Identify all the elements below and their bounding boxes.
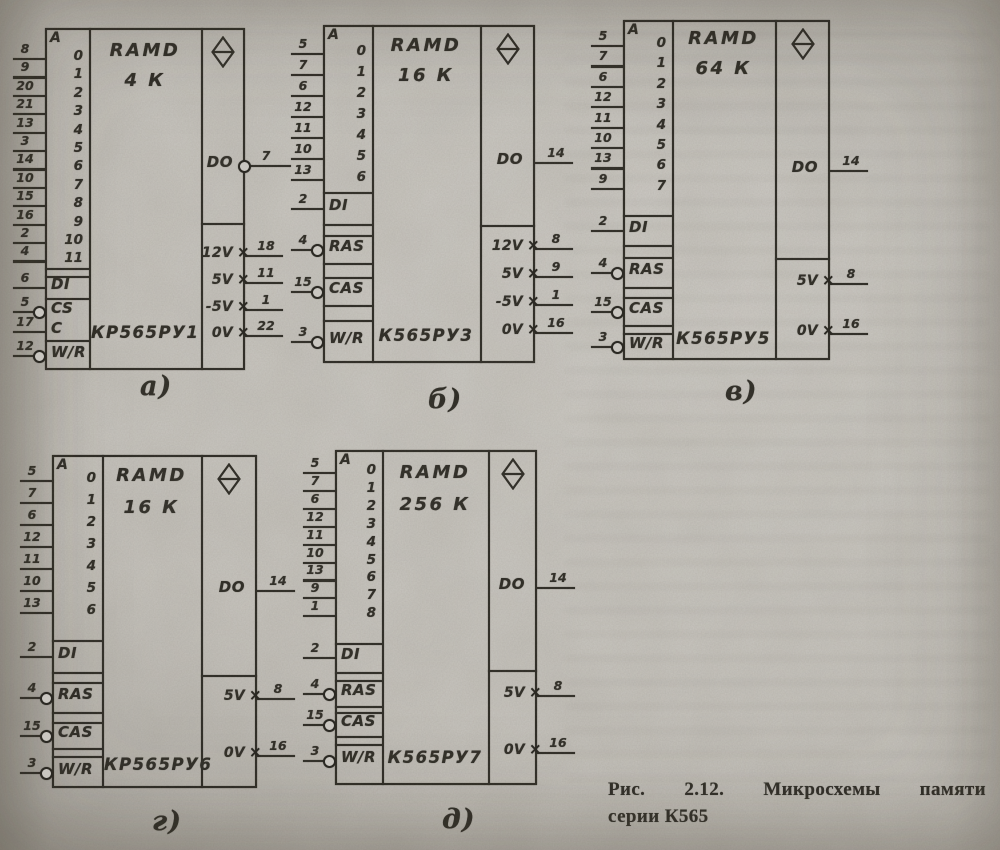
control-pin-label: CS [51,301,73,317]
pin-lead [591,167,623,169]
output-pin-label: DO [482,152,523,168]
pin-number: 2 [299,641,331,654]
power-section-divider [488,670,537,672]
pin-number: 12 [299,510,331,523]
section-divider [52,756,102,758]
address-bit-label: 1 [355,481,376,495]
section-divider [52,712,102,714]
pin-number: 3 [9,134,41,147]
section-label-v: в) [725,378,758,406]
pin-lead [830,283,868,285]
non-logic-pin-marker-icon: × [822,273,835,289]
output-pin-label: DO [777,160,818,176]
pin-number: 14 [836,154,866,167]
capacity-label: 16 К [104,499,199,518]
address-bit-label: 1 [62,67,83,81]
block-type-label: RAMD [374,37,478,56]
section-divider [623,257,672,259]
pin-number: 13 [299,563,331,576]
output-pin-label: DO [490,577,525,593]
address-bit-label: 5 [355,553,376,567]
power-pin-label: 5V [751,274,818,289]
address-bit-label: 4 [645,118,666,132]
control-pin-label: DI [329,198,348,214]
pin-number: 2 [587,214,619,227]
pin-lead [20,524,52,526]
block-type-label: RAMD [384,464,486,483]
non-logic-pin-marker-icon: × [529,685,542,701]
section-divider [52,640,102,642]
pin-lead [20,546,52,548]
address-bit-label: 3 [355,517,376,531]
section-divider [623,245,672,247]
pin-number: 6 [299,492,331,505]
address-header-label: A [340,453,351,468]
right-column-divider [201,455,203,788]
pin-number: 10 [287,142,319,155]
pin-number: 7 [587,49,619,62]
chip-diagram-К565РУ5: A05172631241151061379DI2RAS4CAS15W/R3DO1… [623,20,830,360]
address-bit-label: 3 [645,97,666,111]
pin-lead [591,230,623,232]
right-column-divider [775,20,777,360]
power-section-divider [201,223,245,225]
inversion-circle-icon [611,341,624,354]
output-pin-label: DO [203,580,245,596]
address-bit-label: 2 [355,499,376,513]
right-column-divider [488,450,490,785]
pin-number: 2 [287,192,319,205]
pin-number: 8 [263,682,293,695]
pin-lead [591,188,623,190]
non-logic-pin-marker-icon: × [237,325,250,341]
address-bit-label: 0 [75,471,96,485]
pin-lead [291,208,323,210]
power-pin-label: -5V [177,300,233,315]
pin-number: 13 [9,116,41,129]
control-pin-label: W/R [51,345,86,361]
pin-lead [291,179,323,181]
non-logic-pin-marker-icon: × [237,299,250,315]
pin-number: 5 [587,29,619,42]
section-label-g: г) [152,808,182,836]
non-logic-pin-marker-icon: × [527,238,540,254]
pin-lead [245,335,283,337]
address-header-label: A [628,23,639,38]
pin-number: 12 [16,530,48,543]
pin-lead [303,615,335,617]
figure-caption-line1: Рис. 2.12. Микросхемы памяти [608,779,986,801]
pin-number: 8 [541,232,571,245]
power-pin-label: 5V [177,689,245,704]
inversion-circle-icon [323,755,336,768]
address-bit-label: 2 [645,77,666,91]
non-logic-pin-marker-icon: × [237,245,250,261]
pin-number: 14 [263,574,293,587]
control-pin-label: DI [341,647,360,663]
pin-number: 16 [836,317,866,330]
control-pin-label: DI [629,220,648,236]
pin-lead [20,502,52,504]
inversion-circle-icon [40,767,53,780]
pin-lead [291,158,323,160]
z-state-output-icon [501,458,525,490]
power-pin-label: -5V [456,295,523,310]
pin-number: 11 [587,111,619,124]
control-pin-label: CAS [629,301,664,317]
address-bit-label: 4 [355,535,376,549]
inversion-circle-icon [323,688,336,701]
power-pin-label: 12V [456,239,523,254]
address-bit-label: 0 [345,44,366,58]
section-divider [323,320,372,322]
part-number-label: К565РУ7 [384,749,486,766]
pin-lead [257,755,295,757]
pin-lead [20,568,52,570]
non-logic-pin-marker-icon: × [527,294,540,310]
pin-number: 2 [16,640,48,653]
pin-lead [291,137,323,139]
pin-number: 16 [541,316,571,329]
pin-number: 9 [541,260,571,273]
z-state-output-icon [791,28,815,60]
address-bit-label: 6 [345,170,366,184]
control-pin-label: DI [51,277,70,293]
section-divider [335,736,382,738]
address-bit-label: 5 [645,138,666,152]
pin-number: 1 [541,288,571,301]
control-pin-label: RAS [58,687,93,703]
pin-number: 13 [287,163,319,176]
part-number-label: КР565РУ1 [91,324,199,341]
address-bit-label: 6 [75,603,96,617]
pin-number: 1 [299,599,331,612]
address-bit-label: 4 [345,128,366,142]
section-label-b: б) [428,386,462,414]
block-type-label: RAMD [91,42,199,61]
capacity-label: 256 К [384,496,486,515]
pin-lead [20,590,52,592]
pin-lead [830,170,868,172]
control-pin-label: RAS [329,239,364,255]
pin-lead [537,587,575,589]
section-divider [323,224,372,226]
pin-number: 8 [836,267,866,280]
address-bit-label: 5 [345,149,366,163]
inversion-circle-icon [311,244,324,257]
address-bit-label: 8 [62,196,83,210]
address-bit-label: 1 [75,493,96,507]
address-bit-label: 5 [62,141,83,155]
inversion-circle-icon [311,286,324,299]
non-logic-pin-marker-icon: × [527,322,540,338]
section-divider [45,340,89,342]
pin-lead [535,162,573,164]
section-divider [335,672,382,674]
capacity-label: 64 К [674,60,773,79]
address-bit-label: 6 [62,159,83,173]
section-label-a: а) [140,373,172,401]
pin-number: 18 [251,239,281,252]
address-bit-label: 8 [355,606,376,620]
pin-number: 7 [299,474,331,487]
pin-number: 7 [251,149,281,162]
figure-2-12: A081922032141353614710815916102114DI6CS5… [0,0,1000,850]
control-pin-label: W/R [341,750,376,766]
section-divider [52,682,102,684]
address-bit-label: 11 [62,251,83,265]
pin-number: 6 [287,79,319,92]
pin-lead [20,612,52,614]
pin-number: 5 [16,464,48,477]
address-bit-label: 3 [345,107,366,121]
address-bit-label: 0 [62,49,83,63]
address-header-label: A [328,28,339,43]
address-bit-label: 2 [345,86,366,100]
scanned-book-page: { "icons": { "non_logic_marker": "×" }, … [0,0,1000,850]
pin-number: 20 [9,79,41,92]
non-logic-pin-marker-icon: × [822,323,835,339]
pin-number: 16 [9,208,41,221]
control-pin-label: C [51,321,63,337]
address-bit-label: 0 [355,463,376,477]
pin-lead [535,276,573,278]
pin-lead [257,698,295,700]
pin-lead [245,282,283,284]
control-pin-label: RAS [629,262,664,278]
inversion-circle-icon [311,336,324,349]
pin-number: 15 [9,189,41,202]
section-divider [52,748,102,750]
address-bit-label: 1 [645,56,666,70]
pin-number: 10 [9,171,41,184]
pin-lead [245,165,291,167]
section-divider [623,325,672,327]
inversion-circle-icon [611,306,624,319]
control-pin-label: CAS [341,714,376,730]
inversion-circle-icon [238,160,251,173]
pin-lead [591,127,623,129]
pin-number: 10 [16,574,48,587]
pin-number: 14 [9,152,41,165]
pin-lead [245,309,283,311]
pin-number: 10 [299,546,331,559]
pin-number: 6 [9,271,41,284]
inversion-circle-icon [40,730,53,743]
pin-number: 13 [587,151,619,164]
pin-number: 14 [541,146,571,159]
inversion-circle-icon [33,306,46,319]
address-bit-label: 7 [355,588,376,602]
power-pin-label: 5V [177,273,233,288]
section-divider [323,305,372,307]
pin-number: 6 [587,70,619,83]
section-label-d: д) [442,806,476,834]
z-state-output-icon [496,33,520,65]
pin-number: 2 [9,226,41,239]
section-divider [45,268,89,270]
pin-lead [830,333,868,335]
pin-lead [245,255,283,257]
power-section-divider [480,225,535,227]
pin-lead [591,147,623,149]
pin-lead [13,331,45,333]
part-number-label: КР565РУ6 [104,756,199,773]
pin-number: 13 [16,596,48,609]
pin-lead [535,332,573,334]
control-pin-label: W/R [629,336,664,352]
non-logic-pin-marker-icon: × [527,266,540,282]
control-pin-label: RAS [341,683,376,699]
pin-number: 12 [587,90,619,103]
pin-number: 22 [251,319,281,332]
address-bit-label: 7 [645,179,666,193]
z-state-output-icon [217,463,241,495]
pin-number: 8 [9,42,41,55]
pin-number: 16 [543,736,573,749]
pin-lead [535,304,573,306]
non-logic-pin-marker-icon: × [237,272,250,288]
pin-lead [537,695,575,697]
pin-lead [291,116,323,118]
part-number-label: К565РУ5 [674,330,773,347]
chip-diagram-К565РУ3: A051726312411510613DI2RAS4CAS15W/R3DO141… [323,25,535,363]
address-bit-label: 1 [345,65,366,79]
power-pin-label: 5V [456,267,523,282]
pin-number: 6 [16,508,48,521]
address-bit-label: 9 [62,215,83,229]
pin-number: 4 [9,244,41,257]
chip-diagram-КР565РУ6: A051726312411510613DI2RAS4CAS15W/R3DO145… [52,455,257,788]
address-header-label: A [50,31,61,46]
address-bit-label: 4 [75,559,96,573]
address-bit-label: 10 [62,233,83,247]
address-bit-label: 3 [75,537,96,551]
pin-lead [591,106,623,108]
control-pin-label: DI [58,646,77,662]
pin-lead [13,287,45,289]
pin-number: 16 [263,739,293,752]
inversion-circle-icon [323,719,336,732]
address-bit-label: 6 [645,158,666,172]
address-bit-label: 6 [355,570,376,584]
address-bit-label: 3 [62,104,83,118]
pin-lead [13,260,45,262]
part-number-label: К565РУ3 [374,327,478,344]
pin-number: 9 [299,581,331,594]
chip-diagram-К565РУ7: A0517263124115106137981DI2RAS4CAS15W/R3D… [335,450,537,785]
address-bit-label: 7 [62,178,83,192]
pin-lead [591,45,623,47]
non-logic-pin-marker-icon: × [249,688,262,704]
control-pin-label: CAS [329,281,364,297]
power-pin-label: 5V [464,686,525,701]
pin-lead [20,656,52,658]
control-pin-label: CAS [58,725,93,741]
power-pin-label: 12V [177,246,233,261]
inversion-circle-icon [611,267,624,280]
section-divider [623,215,672,217]
pin-number: 14 [543,571,573,584]
address-header-label: A [57,458,68,473]
pin-number: 5 [287,37,319,50]
address-bit-label: 5 [75,581,96,595]
pin-number: 11 [251,266,281,279]
block-type-label: RAMD [674,30,773,49]
pin-number: 12 [287,100,319,113]
non-logic-pin-marker-icon: × [529,742,542,758]
z-state-output-icon [211,36,235,68]
address-bit-label: 2 [62,86,83,100]
non-logic-pin-marker-icon: × [249,745,262,761]
address-bit-label: 0 [645,36,666,50]
section-divider [52,672,102,674]
section-divider [335,744,382,746]
pin-lead [591,86,623,88]
control-pin-label: W/R [58,762,93,778]
address-bit-label: 4 [62,123,83,137]
pin-lead [303,657,335,659]
pin-number: 11 [287,121,319,134]
pin-number: 5 [299,456,331,469]
power-section-divider [201,675,257,677]
pin-number: 7 [16,486,48,499]
address-bit-label: 2 [75,515,96,529]
inversion-circle-icon [40,692,53,705]
power-section-divider [775,258,830,260]
section-divider [623,287,672,289]
pin-lead [291,74,323,76]
right-column-divider [201,28,203,370]
right-column-divider [480,25,482,363]
capacity-label: 16 К [374,67,478,86]
output-pin-label: DO [203,155,233,171]
section-divider [323,192,372,194]
pin-lead [535,248,573,250]
pin-lead [291,95,323,97]
pin-number: 9 [587,172,619,185]
pin-number: 8 [543,679,573,692]
pin-number: 10 [587,131,619,144]
pin-lead [537,752,575,754]
pin-number: 11 [299,528,331,541]
pin-lead [591,65,623,67]
chip-diagram-КР565РУ1: A081922032141353614710815916102114DI6CS5… [45,28,245,370]
pin-lead [291,53,323,55]
pin-number: 11 [16,552,48,565]
pin-number: 7 [287,58,319,71]
pin-number: 1 [251,293,281,306]
inversion-circle-icon [33,350,46,363]
section-divider [335,706,382,708]
figure-caption-line2: серии К565 [608,806,709,828]
pin-number: 21 [9,97,41,110]
pin-number: 9 [9,60,41,73]
section-divider [323,263,372,265]
pin-lead [20,480,52,482]
capacity-label: 4 К [91,72,199,91]
pin-lead [257,590,295,592]
block-type-label: RAMD [104,467,199,486]
control-pin-label: W/R [329,331,364,347]
